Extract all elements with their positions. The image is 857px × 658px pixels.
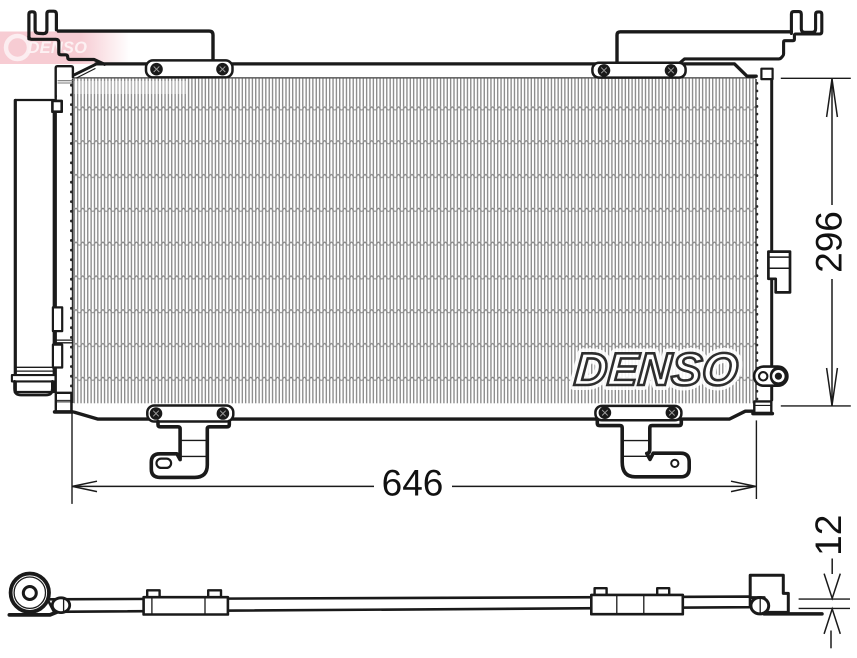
svg-text:296: 296 (809, 211, 850, 273)
svg-text:12: 12 (808, 515, 849, 556)
svg-text:646: 646 (382, 462, 444, 503)
svg-text:DENSO: DENSO (573, 343, 740, 395)
